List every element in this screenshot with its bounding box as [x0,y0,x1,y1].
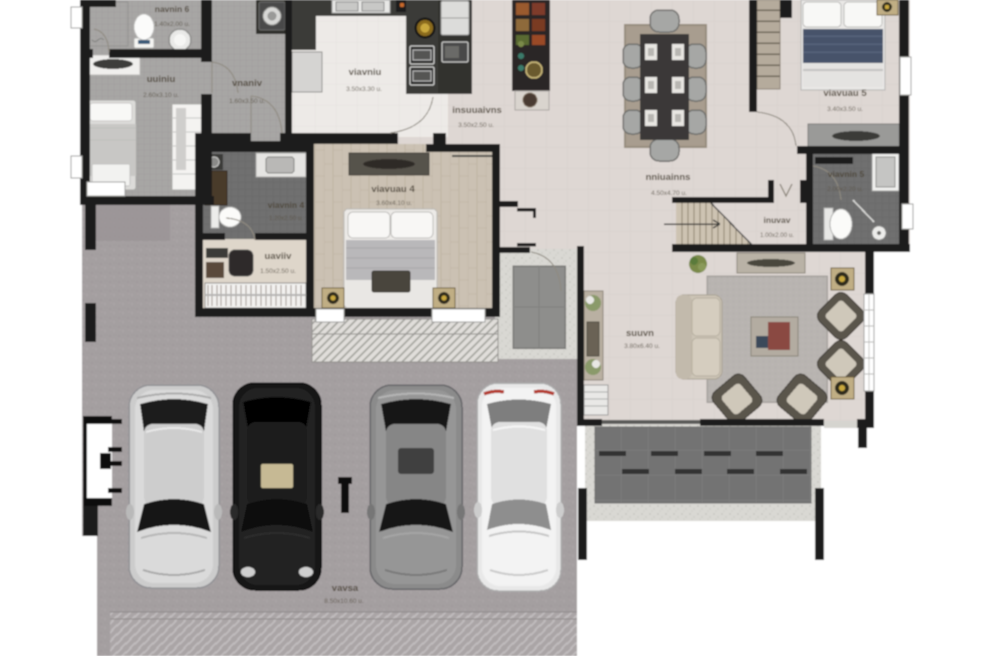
svg-text:viavnin 5: viavnin 5 [828,169,865,179]
svg-text:3.40x3.50 u.: 3.40x3.50 u. [827,106,863,113]
svg-text:1.40x2.00 u.: 1.40x2.00 u. [154,21,190,28]
svg-text:navnin 6: navnin 6 [155,4,190,14]
svg-text:inuvav: inuvav [764,215,791,225]
svg-text:3.50x3.30 u.: 3.50x3.30 u. [346,86,382,93]
svg-text:1.50x2.50 u.: 1.50x2.50 u. [260,268,296,275]
svg-text:vnaniv: vnaniv [232,78,263,89]
svg-text:suuvn: suuvn [626,328,654,339]
svg-text:3.50x2.50 u.: 3.50x2.50 u. [458,122,494,129]
svg-text:viavniu: viavniu [349,67,382,78]
svg-text:insuuaivns: insuuaivns [452,105,502,116]
svg-text:viavuau 5: viavuau 5 [823,88,867,99]
svg-text:nniuainns: nniuainns [646,172,691,183]
svg-text:8.50x10.60 u.: 8.50x10.60 u. [324,598,364,605]
svg-text:uuiniu: uuiniu [147,74,176,85]
svg-text:viavuau 4: viavuau 4 [371,184,415,195]
svg-text:1.60x3.50 u.: 1.60x3.50 u. [229,98,265,105]
svg-text:1.00x2.00 u.: 1.00x2.00 u. [760,232,794,239]
svg-text:2.00x2.20 u.: 2.00x2.20 u. [827,186,863,193]
svg-text:uaviiv: uaviiv [265,251,293,262]
svg-text:3.60x4.10 u.: 3.60x4.10 u. [376,200,412,207]
svg-text:vavsa: vavsa [332,583,359,594]
svg-text:viavnin 4: viavnin 4 [268,200,305,210]
svg-text:3.80x6.40 u.: 3.80x6.40 u. [624,343,660,350]
svg-text:2.60x3.10 u.: 2.60x3.10 u. [143,92,179,99]
svg-text:4.50x4.70 u.: 4.50x4.70 u. [651,190,687,197]
svg-text:1.20x2.50 u.: 1.20x2.50 u. [269,215,303,222]
